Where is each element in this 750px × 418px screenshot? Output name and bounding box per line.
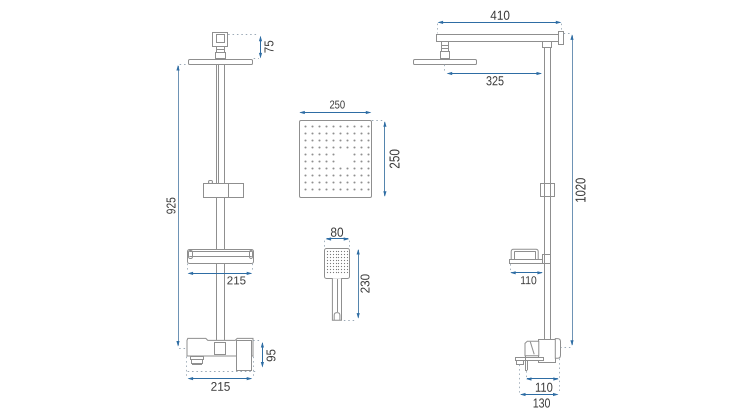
svg-text:215: 215 [227, 275, 246, 287]
svg-text:80: 80 [330, 225, 343, 240]
svg-text:230: 230 [358, 274, 373, 294]
svg-text:75: 75 [261, 40, 276, 53]
svg-text:215: 215 [211, 380, 231, 394]
svg-text:110: 110 [520, 275, 536, 287]
svg-text:130: 130 [533, 395, 551, 410]
svg-text:1020: 1020 [574, 178, 590, 203]
svg-text:925: 925 [163, 197, 178, 214]
svg-text:250: 250 [329, 99, 345, 111]
svg-text:95: 95 [264, 349, 279, 362]
svg-text:250: 250 [388, 149, 404, 169]
svg-text:325: 325 [486, 73, 504, 88]
svg-text:410: 410 [490, 8, 510, 23]
svg-text:110: 110 [535, 380, 553, 395]
